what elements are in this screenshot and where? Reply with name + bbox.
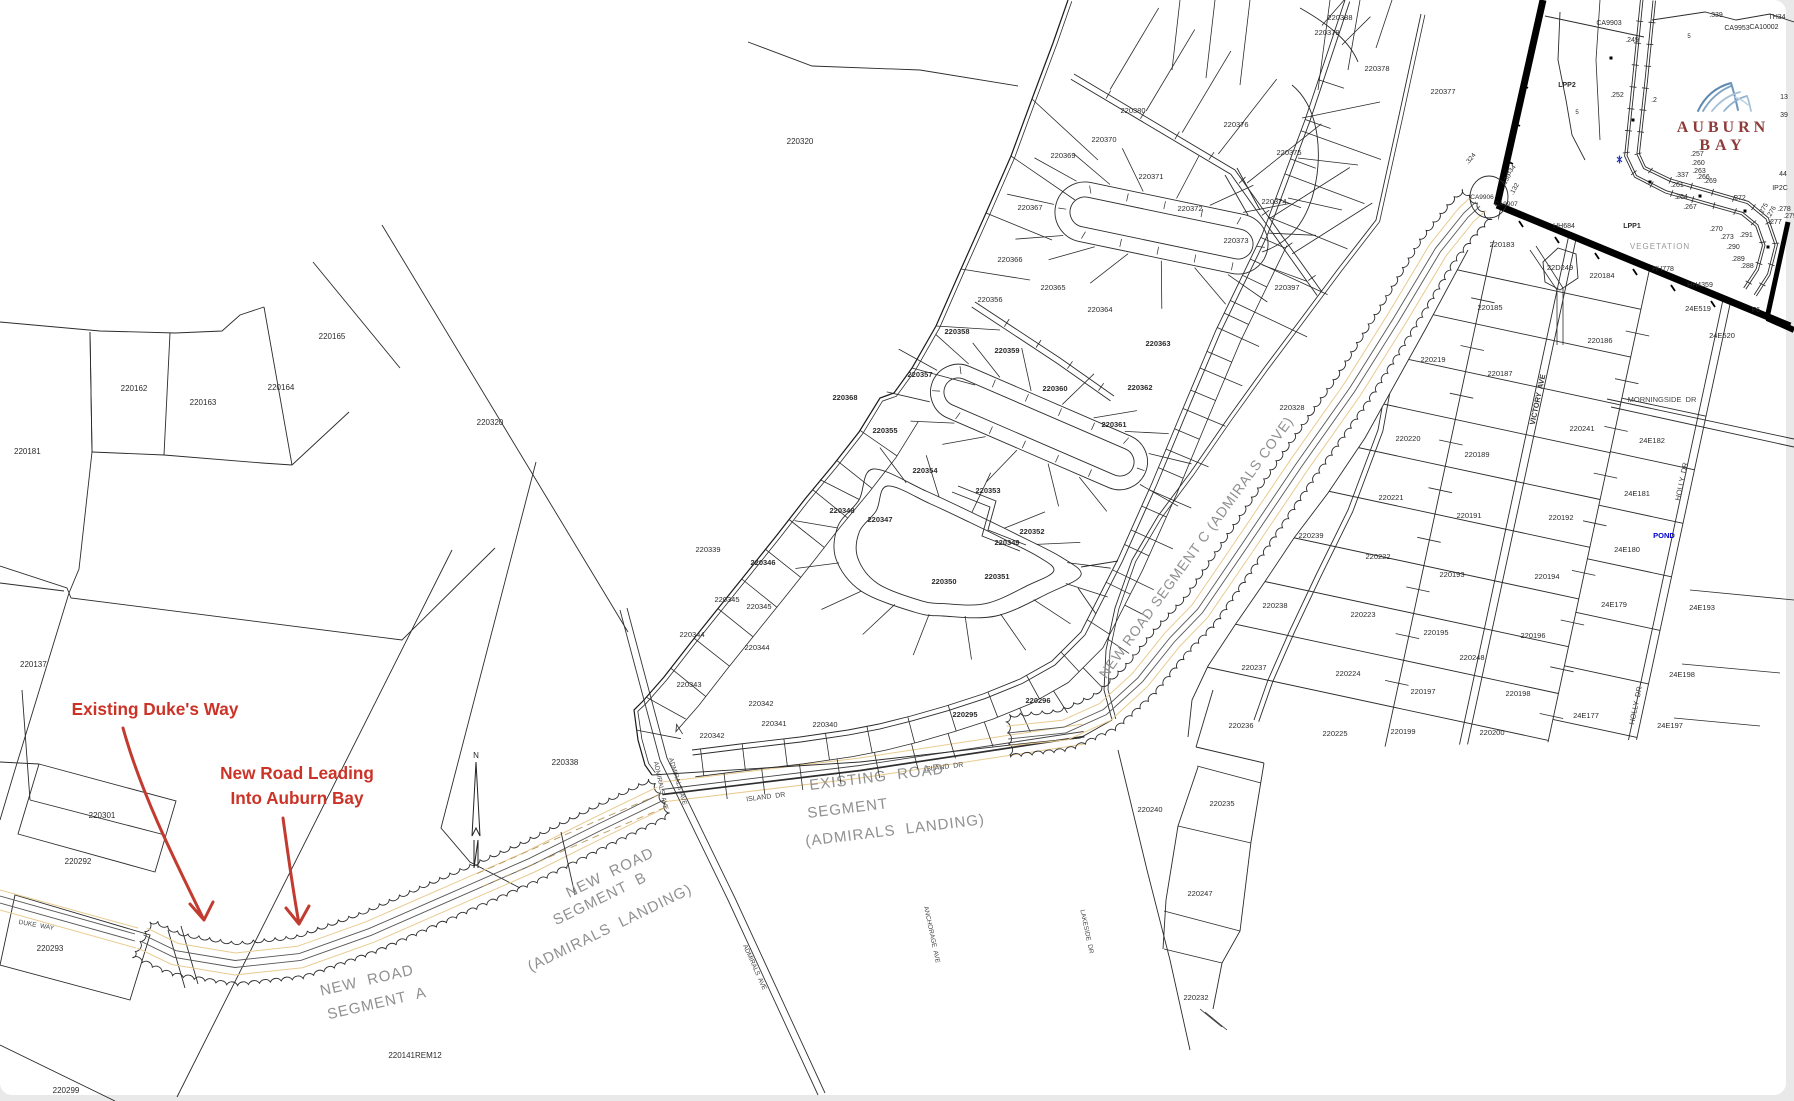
svg-text:220187: 220187 [1487, 369, 1512, 378]
svg-text:24E180: 24E180 [1614, 545, 1640, 554]
svg-text:VICTORY AVE: VICTORY AVE [1528, 373, 1548, 425]
svg-text:CA10002: CA10002 [1749, 24, 1778, 31]
svg-text:220363: 220363 [1145, 339, 1170, 348]
svg-text:F6: F6 [1752, 307, 1760, 314]
svg-text:220184: 220184 [1589, 271, 1614, 280]
svg-text:220344: 220344 [679, 630, 704, 639]
svg-text:.269: .269 [1703, 178, 1717, 185]
svg-text:220368: 220368 [832, 393, 857, 402]
svg-text:.261: .261 [1670, 182, 1684, 189]
svg-text:.277: .277 [1768, 219, 1782, 226]
svg-text:24E197: 24E197 [1657, 721, 1683, 730]
svg-text:5: 5 [1575, 110, 1579, 116]
svg-text:220369: 220369 [1050, 151, 1075, 160]
svg-text:24E198: 24E198 [1669, 670, 1695, 679]
svg-text:220355: 220355 [872, 426, 897, 435]
svg-text:.252: .252 [1610, 92, 1624, 99]
svg-text:IP2C: IP2C [1772, 185, 1788, 192]
svg-text:220200: 220200 [1479, 728, 1504, 737]
svg-text:220220: 220220 [1395, 434, 1420, 443]
svg-text:220366: 220366 [997, 255, 1022, 264]
svg-text:LPP1: LPP1 [1623, 223, 1641, 230]
svg-text:220359: 220359 [994, 346, 1019, 355]
svg-text:220376: 220376 [1223, 120, 1248, 129]
svg-text:220197: 220197 [1410, 687, 1435, 696]
svg-text:220353: 220353 [975, 486, 1000, 495]
svg-text:BAY: BAY [1699, 137, 1746, 154]
svg-text:VEGETATION: VEGETATION [1630, 242, 1690, 251]
svg-text:.270: .270 [1709, 226, 1723, 233]
svg-text:220378: 220378 [1364, 64, 1389, 73]
svg-text:24E182: 24E182 [1639, 436, 1665, 445]
svg-text:220351: 220351 [984, 572, 1009, 581]
svg-text:220248: 220248 [1459, 653, 1484, 662]
svg-text:220339: 220339 [695, 545, 720, 554]
svg-text:220342: 220342 [699, 731, 724, 740]
svg-text:220221: 220221 [1378, 493, 1403, 502]
svg-text:220340: 220340 [812, 720, 837, 729]
svg-text:220293: 220293 [37, 944, 64, 953]
svg-text:HOLLY DR: HOLLY DR [1673, 461, 1690, 501]
svg-text:220247: 220247 [1187, 889, 1212, 898]
svg-text:39: 39 [1780, 112, 1788, 119]
svg-text:.272: .272 [1732, 195, 1746, 202]
svg-text:5: 5 [1687, 34, 1691, 40]
svg-text:.290: .290 [1726, 244, 1740, 251]
svg-text:ADMIRALS AVE: ADMIRALS AVE [741, 944, 768, 992]
svg-text:220237: 220237 [1241, 663, 1266, 672]
svg-text:220320: 220320 [477, 418, 504, 427]
svg-text:220358: 220358 [944, 327, 969, 336]
svg-text:220295: 220295 [952, 710, 977, 719]
svg-text:220388: 220388 [1327, 13, 1352, 22]
svg-text:220371: 220371 [1138, 172, 1163, 181]
svg-text:220365: 220365 [1040, 283, 1065, 292]
svg-text:.288: .288 [1740, 263, 1754, 270]
svg-text:220352: 220352 [1019, 527, 1044, 536]
svg-text:.339: .339 [1709, 12, 1723, 19]
svg-text:CA9906: CA9906 [1470, 194, 1494, 201]
svg-text:44: 44 [1779, 171, 1787, 178]
svg-text:220292: 220292 [65, 857, 92, 866]
svg-text:220344: 220344 [744, 643, 769, 652]
svg-text:220367: 220367 [1017, 203, 1042, 212]
svg-text:.132: .132 [1509, 182, 1522, 197]
svg-text:24E181: 24E181 [1624, 489, 1650, 498]
svg-text:220238: 220238 [1262, 601, 1287, 610]
svg-text:220379: 220379 [1314, 28, 1339, 37]
svg-text:220235: 220235 [1209, 799, 1234, 808]
svg-text:220361: 220361 [1101, 420, 1126, 429]
svg-text:220198: 220198 [1505, 689, 1530, 698]
svg-text:220191: 220191 [1456, 511, 1481, 520]
svg-text:220219: 220219 [1420, 355, 1445, 364]
svg-text:220199: 220199 [1390, 727, 1415, 736]
svg-text:220223: 220223 [1350, 610, 1375, 619]
svg-text:22D249: 22D249 [1547, 263, 1573, 272]
svg-text:220362: 220362 [1127, 383, 1152, 392]
svg-text:Into Auburn Bay: Into Auburn Bay [230, 788, 363, 808]
svg-text:220346: 220346 [750, 558, 775, 567]
svg-text:220241: 220241 [1569, 424, 1594, 433]
svg-text:220224: 220224 [1335, 669, 1360, 678]
svg-text:220189: 220189 [1464, 450, 1489, 459]
svg-text:CA9907: CA9907 [1494, 201, 1518, 208]
svg-text:220239: 220239 [1298, 531, 1323, 540]
svg-text:HH684: HH684 [1553, 223, 1575, 230]
svg-text:220356: 220356 [977, 295, 1002, 304]
svg-text:New Road Leading: New Road Leading [220, 763, 374, 783]
svg-text:220222: 220222 [1365, 552, 1390, 561]
svg-text:AUBURN: AUBURN [1677, 119, 1769, 136]
svg-text:24E520: 24E520 [1709, 331, 1735, 340]
svg-text:220192: 220192 [1548, 513, 1573, 522]
svg-text:.2: .2 [1651, 97, 1657, 104]
svg-text:LAKESIDE DR: LAKESIDE DR [1078, 909, 1094, 955]
svg-text:220163: 220163 [190, 398, 217, 407]
svg-text:220236: 220236 [1228, 721, 1253, 730]
svg-text:220240: 220240 [1137, 805, 1162, 814]
svg-text:220232: 220232 [1183, 993, 1208, 1002]
svg-text:220141REM12: 220141REM12 [388, 1051, 442, 1060]
svg-text:13: 13 [1780, 94, 1788, 101]
svg-text:CA9953: CA9953 [1724, 25, 1749, 32]
svg-text:220186: 220186 [1587, 336, 1612, 345]
svg-text:Existing Duke's Way: Existing Duke's Way [72, 699, 239, 719]
svg-text:.278: .278 [1777, 206, 1791, 213]
svg-text:220301: 220301 [89, 811, 116, 820]
svg-text:HH4359: HH4359 [1687, 282, 1713, 289]
svg-text:MORNINGSIDE DR: MORNINGSIDE DR [1628, 395, 1697, 404]
svg-text:220347: 220347 [867, 515, 892, 524]
svg-text:HOLLY DR: HOLLY DR [1627, 685, 1644, 725]
svg-text:220196: 220196 [1520, 631, 1545, 640]
svg-text:220185: 220185 [1477, 303, 1502, 312]
svg-text:220345: 220345 [714, 595, 739, 604]
svg-text:.273: .273 [1720, 234, 1734, 241]
svg-text:.267: .267 [1683, 204, 1697, 211]
svg-text:220354: 220354 [912, 466, 938, 475]
svg-text:ADMIRALS AVE: ADMIRALS AVE [667, 757, 688, 807]
svg-text:24E179: 24E179 [1601, 600, 1627, 609]
svg-text:.260: .260 [1691, 160, 1705, 167]
svg-text:220374: 220374 [1261, 197, 1286, 206]
svg-text:220341: 220341 [761, 719, 786, 728]
svg-text:ANCHORAGE AVE: ANCHORAGE AVE [922, 906, 941, 965]
svg-text:.324: .324 [1464, 152, 1478, 166]
svg-text:24E193: 24E193 [1689, 603, 1715, 612]
svg-text:220364: 220364 [1087, 305, 1112, 314]
svg-text:220165: 220165 [319, 332, 346, 341]
svg-text:220345: 220345 [746, 602, 771, 611]
svg-text:220299: 220299 [53, 1086, 80, 1095]
svg-text:CA9903: CA9903 [1596, 20, 1621, 27]
svg-text:220320: 220320 [787, 137, 814, 146]
svg-text:ISLAND DR: ISLAND DR [746, 792, 786, 804]
svg-text:220225: 220225 [1322, 729, 1347, 738]
svg-text:220377: 220377 [1430, 87, 1455, 96]
svg-text:220357: 220357 [907, 370, 932, 379]
svg-text:POND: POND [1653, 531, 1675, 540]
svg-text:220194: 220194 [1534, 572, 1559, 581]
svg-text:220348: 220348 [829, 506, 854, 515]
svg-text:220375: 220375 [1276, 148, 1301, 157]
svg-text:220162: 220162 [121, 384, 148, 393]
svg-text:220164: 220164 [268, 383, 295, 392]
svg-text:HH778: HH778 [1652, 266, 1674, 273]
svg-text:220343: 220343 [676, 680, 701, 689]
svg-text:220372: 220372 [1177, 204, 1202, 213]
svg-text:.291: .291 [1739, 232, 1753, 239]
svg-text:220183: 220183 [1489, 240, 1514, 249]
svg-text:220296: 220296 [1025, 696, 1050, 705]
svg-text:220195: 220195 [1423, 628, 1448, 637]
svg-text:220181: 220181 [14, 447, 41, 456]
svg-text:.279: .279 [1783, 213, 1794, 220]
svg-text:220137: 220137 [20, 660, 47, 669]
svg-text:220349: 220349 [994, 538, 1019, 547]
svg-text:.337: .337 [1675, 172, 1689, 179]
svg-text:220380: 220380 [1120, 106, 1145, 115]
svg-text:SEGMENT: SEGMENT [806, 795, 889, 822]
svg-text:N: N [473, 751, 479, 760]
svg-text:220397: 220397 [1274, 283, 1299, 292]
svg-text:220360: 220360 [1042, 384, 1067, 393]
svg-text:220328: 220328 [1279, 403, 1304, 412]
svg-text:.249: .249 [1625, 37, 1639, 44]
svg-text:TH34: TH34 [1768, 14, 1785, 21]
svg-text:24E519: 24E519 [1685, 304, 1711, 313]
svg-text:220342: 220342 [748, 699, 773, 708]
svg-text:220370: 220370 [1091, 135, 1116, 144]
svg-text:220193: 220193 [1439, 570, 1464, 579]
svg-text:DUKE WAY: DUKE WAY [18, 919, 55, 932]
svg-text:220338: 220338 [552, 758, 579, 767]
svg-text:.289: .289 [1731, 256, 1745, 263]
svg-text:220350: 220350 [931, 577, 956, 586]
svg-text:24E177: 24E177 [1573, 711, 1599, 720]
svg-text:LPP2: LPP2 [1558, 82, 1576, 89]
svg-text:.264: .264 [1674, 194, 1688, 201]
svg-text:220373: 220373 [1223, 236, 1248, 245]
